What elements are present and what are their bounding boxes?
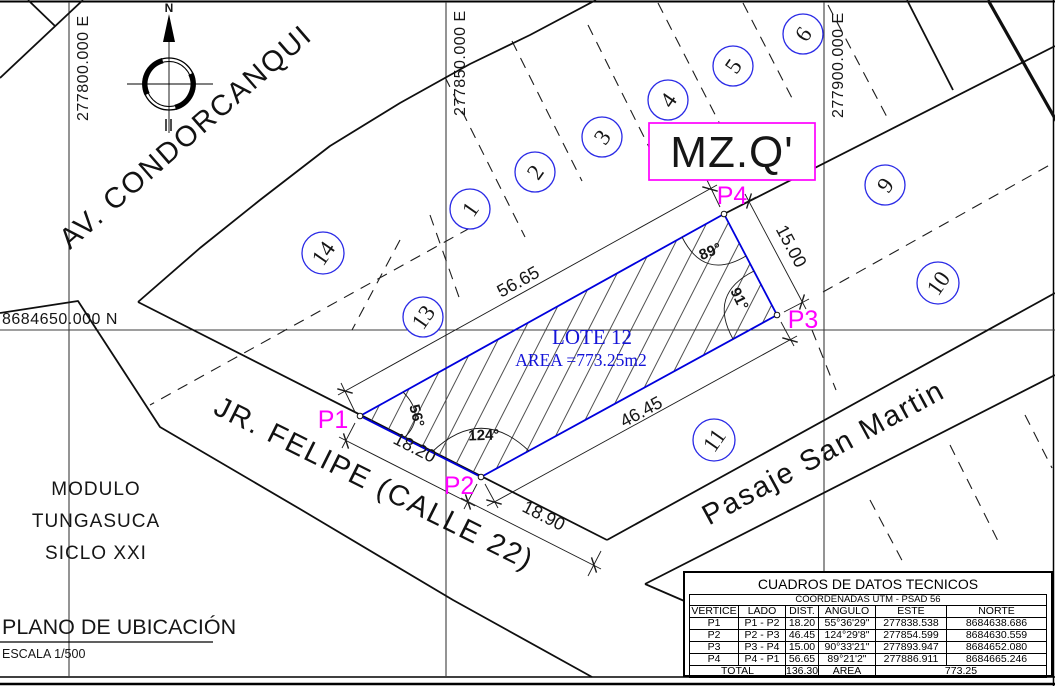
- northeast-street-line: [988, 0, 1055, 122]
- cell: 8684638.686: [946, 618, 1046, 630]
- table-subtitle: COORDENADAS UTM - PSAD 56: [689, 595, 1046, 606]
- col-header: LADO: [738, 606, 785, 618]
- table-row: P3P3 - P4 15.0090°33'21" 277893.94786846…: [689, 642, 1046, 654]
- total-area-value: 773.25: [875, 666, 1046, 678]
- table-total-row: TOTAL 136.30 AREA 773.25: [689, 666, 1046, 678]
- cell: P1: [689, 618, 738, 630]
- cell: 277886.911: [875, 654, 946, 666]
- cell: 89°21'2": [818, 654, 875, 666]
- east-coordinate-label: 277800.000 E: [75, 15, 92, 121]
- coordinates-table: COORDENADAS UTM - PSAD 56 VERTICE LADO D…: [689, 594, 1047, 678]
- plan-title: PLANO DE UBICACIÓN: [2, 614, 236, 639]
- total-dist: 136.30: [785, 666, 818, 678]
- avenue-left-boundary: [0, 0, 83, 78]
- corner-line: [28, 0, 55, 26]
- cell: 55°36'29": [818, 618, 875, 630]
- lot-name: LOTE 12: [552, 325, 632, 349]
- neighborhood-line-1: MODULO: [51, 479, 140, 500]
- table-row: P1P1 - P2 18.2055°36'29" 277838.53886846…: [689, 618, 1046, 630]
- lot-area: AREA =773.25m2: [515, 350, 646, 370]
- cell: 15.00: [785, 642, 818, 654]
- block-label: MZ.Q': [670, 128, 793, 177]
- cell: 8684665.246: [946, 654, 1046, 666]
- neighborhood-line-3: SICLO XXI: [45, 543, 147, 564]
- dim-15-00: 15.00: [772, 222, 811, 271]
- cell: 277854.599: [875, 630, 946, 642]
- cell: P4 - P1: [738, 654, 785, 666]
- vertex-label-p4: P4: [717, 182, 748, 210]
- table-title: CUADROS DE DATOS TECNICOS: [685, 573, 1051, 594]
- vertex-label-p1: P1: [318, 406, 349, 434]
- cell: P2: [689, 630, 738, 642]
- angle-p2: 124°: [468, 426, 500, 444]
- cell: 277893.947: [875, 642, 946, 654]
- vertex-label-p3: P3: [788, 306, 819, 334]
- cell: 56.65: [785, 654, 818, 666]
- cell: P3: [689, 642, 738, 654]
- col-header: ESTE: [875, 606, 946, 618]
- cell: 277838.538: [875, 618, 946, 630]
- total-area-label: AREA: [818, 666, 875, 678]
- total-label: TOTAL: [689, 666, 785, 678]
- north-coordinate-label: 8684650.000 N: [2, 311, 118, 328]
- col-header: DIST.: [785, 606, 818, 618]
- vertex-label-p2: P2: [444, 472, 475, 500]
- avenue-right-boundary: [138, 0, 596, 302]
- col-header: NORTE: [946, 606, 1046, 618]
- table-row: P2P2 - P3 46.45124°29'8" 277854.59986846…: [689, 630, 1046, 642]
- dim-18-90: 18.90: [519, 497, 568, 535]
- cell: 8684652.080: [946, 642, 1046, 654]
- avenue-name: AV. CONDORCANQUI: [53, 19, 318, 255]
- col-header: VERTICE: [689, 606, 738, 618]
- east-coordinate-label: 277850.000 E: [452, 10, 469, 116]
- cell: P3 - P4: [738, 642, 785, 654]
- northeast-lot-line: [907, 0, 953, 90]
- cell: 90°33'21": [818, 642, 875, 654]
- site-plan-sheet: 277800.000 E 277850.000 E 277900.000 E 8…: [0, 0, 1055, 686]
- col-header: ANGULO: [818, 606, 875, 618]
- east-coordinate-label: 277900.000 E: [830, 12, 847, 118]
- table-row: P4P4 - P1 56.6589°21'2" 277886.911868466…: [689, 654, 1046, 666]
- cell: 46.45: [785, 630, 818, 642]
- neighborhood-line-2: TUNGASUCA: [32, 511, 160, 532]
- table-header-row: VERTICE LADO DIST. ANGULO ESTE NORTE: [689, 606, 1046, 618]
- block-label-box: MZ.Q': [649, 123, 815, 180]
- cell: 124°29'8": [818, 630, 875, 642]
- technical-data-table: CUADROS DE DATOS TECNICOS COORDENADAS UT…: [683, 571, 1053, 677]
- cell: P1 - P2: [738, 618, 785, 630]
- plan-scale: ESCALA 1/500: [2, 647, 85, 661]
- cell: 8684630.559: [946, 630, 1046, 642]
- cell: 18.20: [785, 618, 818, 630]
- cell: P4: [689, 654, 738, 666]
- compass-north-letter: N: [165, 1, 174, 15]
- cell: P2 - P3: [738, 630, 785, 642]
